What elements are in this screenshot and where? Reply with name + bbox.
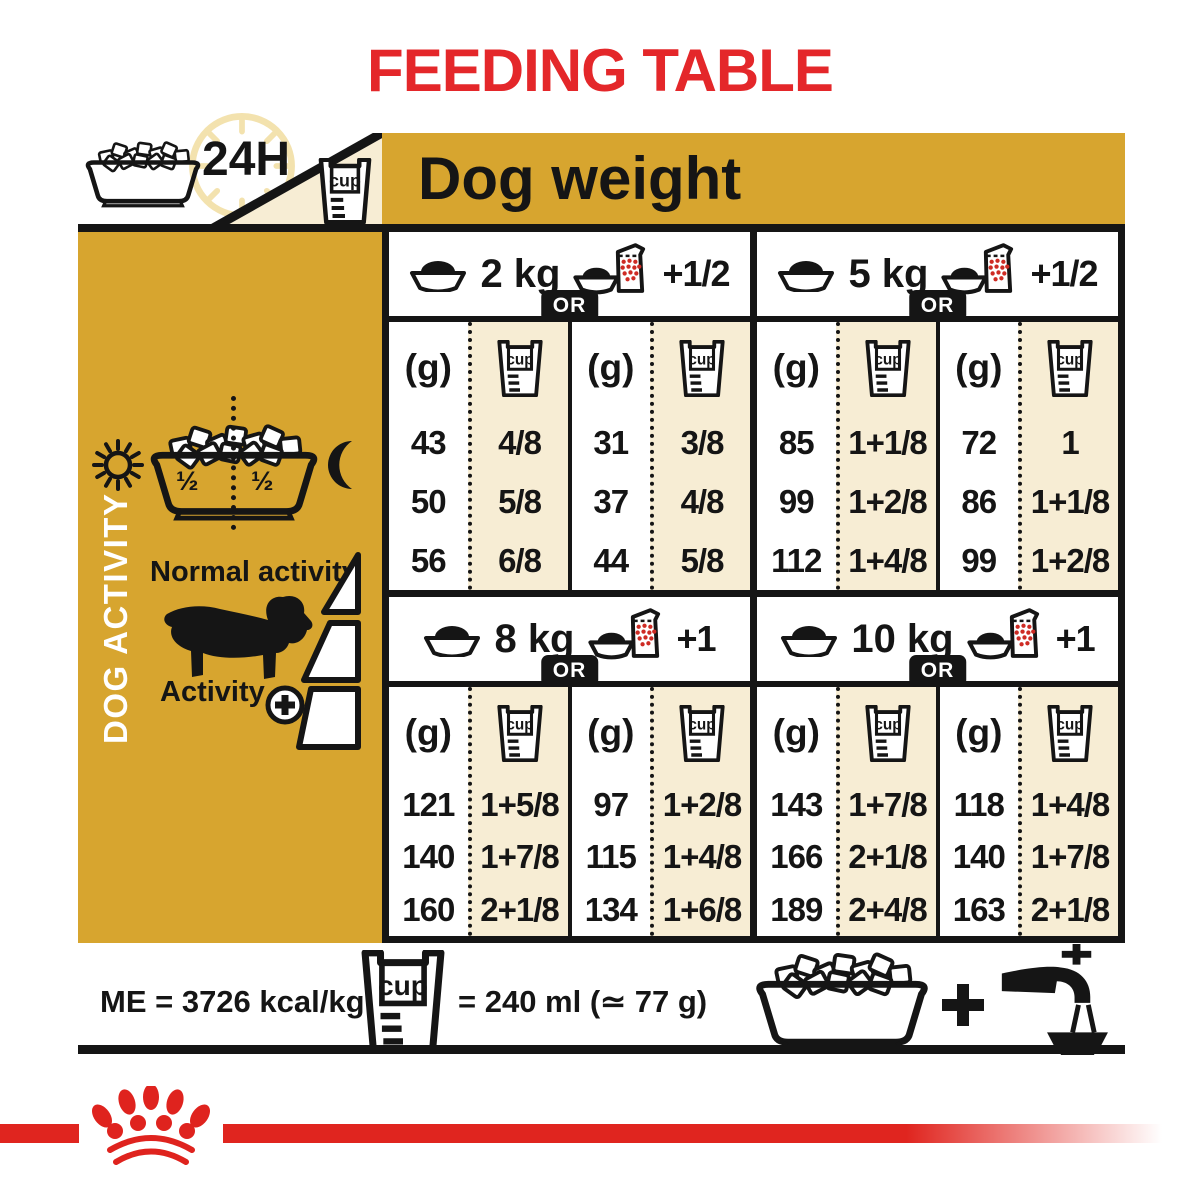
grams-value: 72	[940, 414, 1019, 473]
wet-supplement-label: +1/2	[1030, 253, 1097, 295]
cup-value: 2+1/8	[840, 831, 936, 883]
cup-value: 1+1/8	[1022, 473, 1118, 532]
cups-column: 1+2/8 1+4/8 1+6/8	[650, 687, 750, 936]
or-badge: OR	[541, 290, 599, 322]
cups-column: 1+4/8 1+7/8 2+1/8	[1018, 687, 1118, 936]
cup-value: 1+5/8	[472, 779, 568, 831]
wet-supplement-label: +1/2	[662, 253, 729, 295]
food-bowl-icon	[752, 948, 932, 1052]
grams-value: 50	[389, 473, 468, 532]
moon-icon	[320, 439, 360, 491]
bowl-split-dotted-line	[231, 396, 236, 530]
grams-value: 163	[940, 884, 1019, 936]
dog-weight-header: Dog weight	[382, 133, 1125, 224]
grams-value: 44	[572, 531, 651, 590]
sun-icon	[90, 437, 146, 493]
feeding-table: 2 kg +1/2 OR 5 kg +1/2 OR (g)	[382, 232, 1125, 943]
data-8kg: (g) 121 140 160 1+5/8 1+7/8 2+1/8	[389, 687, 750, 936]
grams-label: (g)	[587, 347, 634, 389]
cups-column: 1+1/8 1+2/8 1+4/8	[836, 322, 936, 590]
cup-icon	[497, 340, 543, 397]
weight-header-10kg: 10 kg +1 OR	[750, 597, 1118, 681]
cup-icon	[497, 705, 543, 762]
cup-value: 4/8	[654, 473, 750, 532]
grams-label: (g)	[773, 712, 820, 754]
water-tap-icon	[990, 942, 1108, 1055]
half-portion-left: ½	[176, 466, 199, 497]
cup-icon	[360, 950, 446, 1054]
bowl-icon	[780, 621, 838, 657]
dog-activity-vertical-label: DOG ACTIVITY	[97, 493, 135, 744]
grams-value: 112	[757, 531, 836, 590]
cup-value: 1+7/8	[472, 831, 568, 883]
grams-value: 121	[389, 779, 468, 831]
grams-value: 140	[389, 831, 468, 883]
grams-value: 31	[572, 414, 651, 473]
wet-supplement-label: +1	[1056, 618, 1095, 660]
with-wet-column: (g) 31 37 44 3/8 4/8 5/8	[568, 322, 751, 590]
bowl-and-pouch-icon	[967, 607, 1043, 664]
weight-header-row: 8 kg +1 OR 10 kg +1 OR	[389, 597, 1118, 687]
cup-value: 3/8	[654, 414, 750, 473]
data-2kg: (g) 43 50 56 4/8 5/8 6/8	[389, 322, 750, 590]
cup-value: 2+4/8	[840, 884, 936, 936]
cup-value: 1+2/8	[654, 779, 750, 831]
grams-value: 134	[572, 884, 651, 936]
cup-icon	[1047, 340, 1093, 397]
bowl-icon	[777, 256, 835, 292]
cup-value: 1+4/8	[1022, 779, 1118, 831]
grams-column: (g) 143 166 189	[757, 687, 836, 936]
dry-only-column: (g) 85 99 112 1+1/8 1+2/8 1+4/8	[757, 322, 936, 590]
cup-value: 5/8	[654, 531, 750, 590]
data-10kg: (g) 143 166 189 1+7/8 2+1/8 2+4/8	[750, 687, 1118, 936]
grams-value: 99	[940, 531, 1019, 590]
grams-value: 189	[757, 884, 836, 936]
grams-value: 56	[389, 531, 468, 590]
footer-divider	[78, 1045, 1125, 1054]
cup-value: 2+1/8	[472, 884, 568, 936]
wet-supplement-label: +1	[677, 618, 716, 660]
bowl-icon	[409, 256, 467, 292]
cup-icon	[679, 340, 725, 397]
cup-value: 1+4/8	[654, 831, 750, 883]
grams-label: (g)	[405, 347, 452, 389]
plus-icon	[938, 980, 988, 1030]
cup-value: 4/8	[472, 414, 568, 473]
dry-only-column: (g) 143 166 189 1+7/8 2+1/8 2+4/8	[757, 687, 936, 936]
cup-value: 1+2/8	[1022, 531, 1118, 590]
grams-label: (g)	[955, 712, 1002, 754]
grams-value: 115	[572, 831, 651, 883]
weight-data-row: (g) 121 140 160 1+5/8 1+7/8 2+1/8	[389, 687, 1118, 936]
grams-column: (g) 72 86 99	[940, 322, 1019, 590]
grams-label: (g)	[773, 347, 820, 389]
header-divider	[78, 224, 1125, 232]
metabolizable-energy-note: ME = 3726 kcal/kg	[100, 984, 365, 1020]
feeding-table-page: cup	[0, 0, 1200, 1200]
grams-value: 43	[389, 414, 468, 473]
weight-group-small: 2 kg +1/2 OR 5 kg +1/2 OR (g)	[389, 232, 1118, 590]
cup-icon	[865, 705, 911, 762]
activity-label: Activity	[160, 676, 265, 709]
cup-value: 2+1/8	[1022, 884, 1118, 936]
dry-only-column: (g) 121 140 160 1+5/8 1+7/8 2+1/8	[389, 687, 568, 936]
grams-label: (g)	[405, 712, 452, 754]
grams-value: 143	[757, 779, 836, 831]
activity-scale-triangles	[296, 550, 362, 752]
cups-column: 3/8 4/8 5/8	[650, 322, 750, 590]
weight-header-row: 2 kg +1/2 OR 5 kg +1/2 OR	[389, 232, 1118, 322]
grams-column: (g) 31 37 44	[572, 322, 651, 590]
cup-value: 1+7/8	[840, 779, 936, 831]
food-bowl-icon	[84, 138, 202, 208]
cups-column: 1+7/8 2+1/8 2+4/8	[836, 687, 936, 936]
cup-value: 1+7/8	[1022, 831, 1118, 883]
grams-column: (g) 43 50 56	[389, 322, 468, 590]
dry-only-column: (g) 43 50 56 4/8 5/8 6/8	[389, 322, 568, 590]
weight-header-8kg: 8 kg +1 OR	[389, 597, 750, 681]
grams-value: 118	[940, 779, 1019, 831]
grams-value: 166	[757, 831, 836, 883]
half-portion-right: ½	[251, 466, 274, 497]
cup-value: 5/8	[472, 473, 568, 532]
grams-value: 85	[757, 414, 836, 473]
cup-icon	[865, 340, 911, 397]
grams-label: (g)	[955, 347, 1002, 389]
cup-icon	[318, 158, 372, 224]
or-badge: OR	[909, 655, 967, 687]
cups-column: 4/8 5/8 6/8	[468, 322, 568, 590]
grams-value: 99	[757, 473, 836, 532]
cup-value: 1+4/8	[840, 531, 936, 590]
grams-value: 37	[572, 473, 651, 532]
or-badge: OR	[541, 655, 599, 687]
or-badge: OR	[909, 290, 967, 322]
data-5kg: (g) 85 99 112 1+1/8 1+2/8 1+4/8	[750, 322, 1118, 590]
grams-label: (g)	[587, 712, 634, 754]
grams-value: 160	[389, 884, 468, 936]
with-wet-column: (g) 97 115 134 1+2/8 1+4/8 1+6/8	[568, 687, 751, 936]
cup-value: 1+2/8	[840, 473, 936, 532]
cup-value: 1+6/8	[654, 884, 750, 936]
with-wet-column: (g) 72 86 99 1 1+1/8 1+2/8	[936, 322, 1119, 590]
cup-value: 1+1/8	[840, 414, 936, 473]
weight-data-row: (g) 43 50 56 4/8 5/8 6/8	[389, 322, 1118, 590]
cup-icon	[679, 705, 725, 762]
page-title: FEEDING TABLE	[0, 36, 1200, 105]
bowl-and-pouch-icon	[588, 607, 664, 664]
cup-volume-note: = 240 ml (≃ 77 g)	[458, 984, 707, 1020]
grams-column: (g) 97 115 134	[572, 687, 651, 936]
cups-column: 1 1+1/8 1+2/8	[1018, 322, 1118, 590]
grams-value: 97	[572, 779, 651, 831]
cup-value: 6/8	[472, 531, 568, 590]
grams-column: (g) 118 140 163	[940, 687, 1019, 936]
grams-column: (g) 85 99 112	[757, 322, 836, 590]
bowl-icon	[423, 621, 481, 657]
grams-value: 140	[940, 831, 1019, 883]
cup-icon	[1047, 705, 1093, 762]
weight-group-large: 8 kg +1 OR 10 kg +1 OR (g)	[389, 597, 1118, 936]
cup-value: 1	[1022, 414, 1118, 473]
grams-column: (g) 121 140 160	[389, 687, 468, 936]
with-wet-column: (g) 118 140 163 1+4/8 1+7/8 2+1/8	[936, 687, 1119, 936]
weight-header-5kg: 5 kg +1/2 OR	[750, 232, 1118, 316]
cups-column: 1+5/8 1+7/8 2+1/8	[468, 687, 568, 936]
royal-canin-crown-logo	[82, 1086, 220, 1166]
weight-header-2kg: 2 kg +1/2 OR	[389, 232, 750, 316]
grams-value: 86	[940, 473, 1019, 532]
group-separator	[389, 590, 1118, 597]
